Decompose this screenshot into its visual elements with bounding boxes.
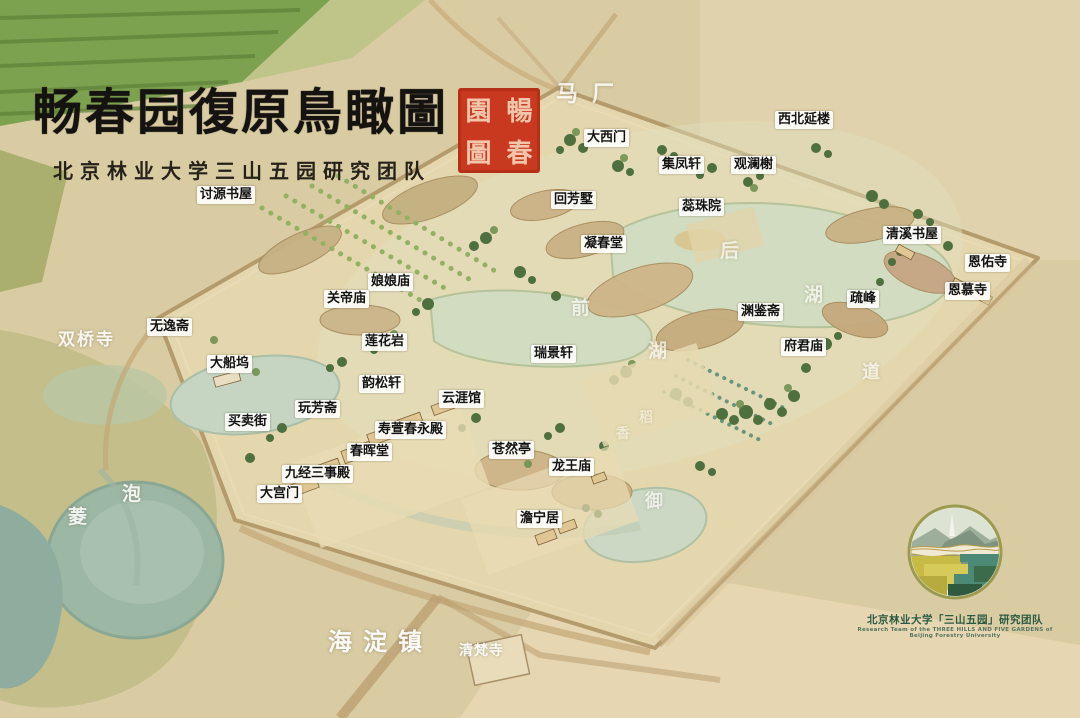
research-team-logo: 北京林业大学「三山五园」研究团队 Research Team of the TH… [830, 500, 1080, 639]
watermark-label: 香 [616, 423, 630, 443]
place-label: 回芳墅 [551, 191, 596, 209]
watermark-label: 双桥寺 [58, 325, 115, 350]
place-label: 集凤轩 [659, 156, 704, 174]
seal-char: 春 [499, 131, 540, 174]
place-label: 渊鉴斋 [738, 303, 783, 321]
place-label: 莲花岩 [362, 333, 407, 351]
place-label: 苍然亭 [489, 441, 534, 459]
place-label: 玩芳斋 [295, 400, 340, 418]
place-label: 云涯馆 [439, 390, 484, 408]
watermark-label: 菱 [68, 502, 87, 529]
watermark-label: 前 [571, 293, 590, 320]
place-label: 西北延楼 [775, 111, 833, 129]
watermark-label: 御 [645, 487, 663, 513]
seal-char: 圖 [458, 131, 499, 174]
place-label: 大宫门 [257, 485, 302, 503]
place-label: 娘娘庙 [368, 273, 413, 291]
place-label: 凝春堂 [581, 235, 626, 253]
place-label: 恩佑寺 [965, 254, 1010, 272]
place-label: 龙王庙 [549, 458, 594, 476]
seal-char: 暢 [499, 88, 540, 131]
place-label: 恩慕寺 [945, 282, 990, 300]
watermark-label: 湖 [648, 336, 667, 363]
place-label: 春晖堂 [347, 443, 392, 461]
watermark-label: 稻 [639, 407, 653, 427]
place-label: 寿萱春永殿 [375, 421, 446, 439]
watermark-label: 海淀镇 [328, 622, 433, 657]
place-label: 府君庙 [781, 338, 826, 356]
place-label: 澹宁居 [517, 510, 562, 528]
place-label: 观澜榭 [731, 156, 776, 174]
watermark-label: 道 [862, 358, 880, 384]
logo-emblem-icon [890, 500, 1020, 605]
place-label: 清溪书屋 [883, 226, 941, 244]
place-label: 蕊珠院 [679, 198, 724, 216]
watermark-label: 后 [720, 236, 739, 263]
map-title: 畅春园復原鳥瞰圖 [33, 88, 463, 137]
place-label: 九经三事殿 [282, 465, 353, 483]
place-label: 无逸斋 [147, 318, 192, 336]
red-seal-stamp: 園 暢 圖 春 [458, 88, 540, 173]
seal-char: 園 [458, 88, 499, 131]
watermark-label: 清梵寺 [459, 640, 504, 660]
place-label: 买卖街 [225, 413, 270, 431]
place-label: 韵松轩 [359, 375, 404, 393]
place-label: 讨源书屋 [197, 186, 255, 204]
watermark-label: 湖 [804, 280, 823, 307]
logo-cn-text: 北京林业大学「三山五园」研究团队 [830, 612, 1080, 627]
place-label: 疏峰 [847, 290, 879, 308]
logo-en-text-2: Beijing Forestry University [830, 633, 1080, 639]
map-subtitle: 北京林业大学三山五园研究团队 [53, 155, 453, 184]
place-label: 瑞景轩 [531, 345, 576, 363]
place-label: 关帝庙 [324, 290, 369, 308]
watermark-label: 马厂 [556, 76, 628, 108]
map-canvas: 畅春园復原鳥瞰圖 北京林业大学三山五园研究团队 園 暢 圖 春 大西门西北延楼集… [0, 0, 1080, 718]
watermark-label: 泡 [122, 479, 141, 506]
place-label: 大船坞 [207, 355, 252, 373]
place-label: 大西门 [584, 129, 629, 147]
